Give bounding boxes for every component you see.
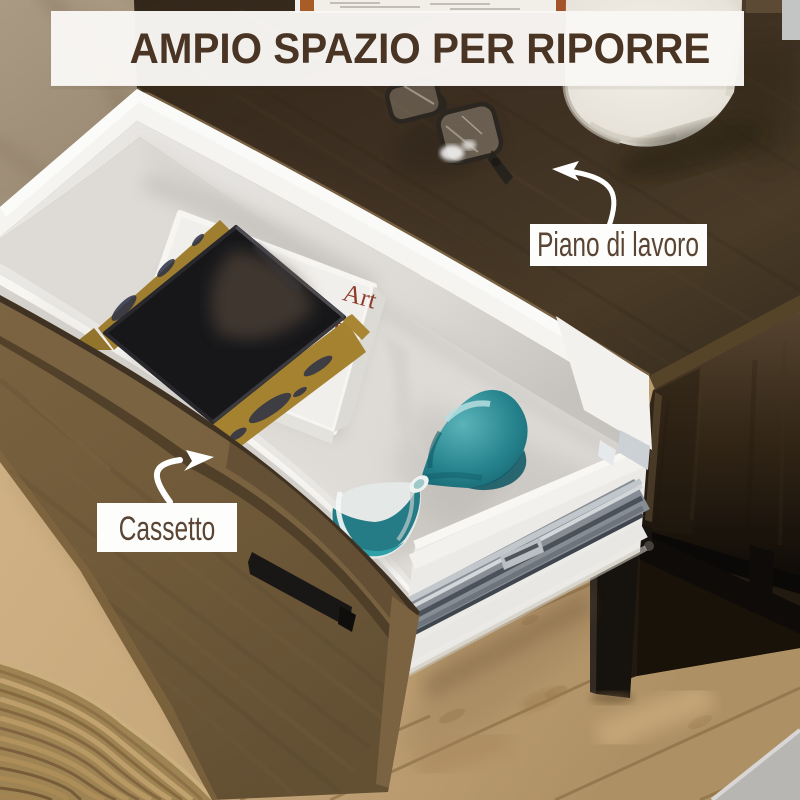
- svg-text:Cassetto: Cassetto: [119, 510, 216, 548]
- svg-text:AMPIO SPAZIO PER RIPORRE: AMPIO SPAZIO PER RIPORRE: [130, 24, 711, 72]
- svg-text:Piano di lavoro: Piano di lavoro: [537, 226, 699, 264]
